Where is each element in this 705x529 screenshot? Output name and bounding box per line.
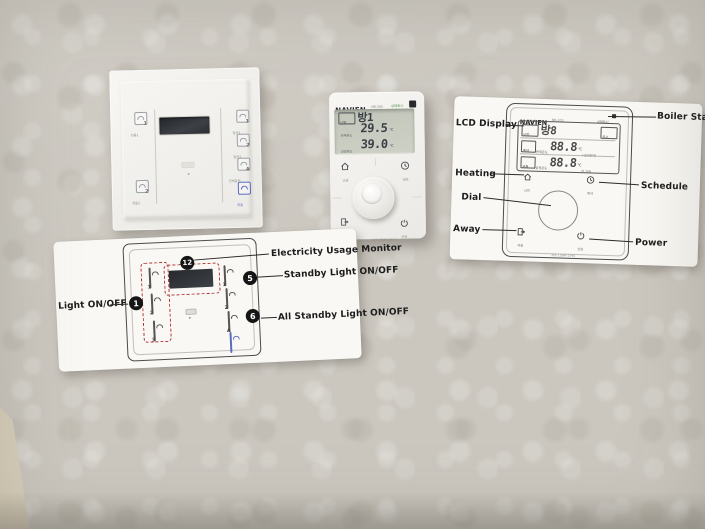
dial-knob (361, 183, 382, 204)
away-icon (237, 182, 250, 195)
smart-switch-display (159, 116, 209, 134)
mode-tag: 난방 (338, 112, 355, 124)
tick-mark (375, 158, 376, 166)
set-temp-value: 39.0 (361, 137, 388, 151)
callout-schedule: Schedule (641, 181, 688, 192)
clock-icon (400, 161, 410, 171)
standby-all-button: A 전체절전 (230, 157, 256, 177)
wall-photo: SMART SWITCH 1 전등1 2 전등2 1 절전1 2 절전2 A 전… (0, 0, 705, 529)
standby-1-icon: 1 (236, 110, 249, 123)
mode-tag: 난방 (521, 124, 538, 137)
light-1-button: 1 전등1 (127, 112, 153, 132)
light-1-icon: 1 (134, 112, 147, 125)
thermostat-dial (352, 177, 395, 220)
tick-mark (412, 196, 421, 197)
callout-line (482, 229, 516, 231)
clock-icon (585, 175, 594, 184)
heating-button: 난방 (334, 161, 356, 190)
drawing-away-button: 외출 (510, 227, 531, 256)
thermostat: NAVIEN NR-20S 상태표시 난방 방1 현재온도 29.5 ℃ (329, 91, 426, 239)
power-icon (399, 219, 408, 228)
boiler-guide-card: NAVIEN NR-20S 상태표시 난방 방8 온수 예약 현재온도 88.8… (450, 96, 703, 267)
current-temp-value: 88.8 (550, 139, 577, 154)
light-2-icon: 2 (135, 180, 148, 193)
standby-all-icon: A (237, 158, 250, 171)
power-icon (576, 231, 585, 240)
dhw-tag: 온수 (600, 127, 617, 140)
tick-mark (332, 198, 341, 199)
callout-lcd-display: LCD Display (456, 118, 504, 130)
drawing-schedule-button: 예약 (579, 175, 600, 204)
away-button: 외출 (231, 181, 257, 201)
away-tag: 외출 (520, 156, 535, 168)
thermostat-lcd: 난방 방1 현재온도 29.5 ℃ 설정온도 39.0 ℃ (334, 108, 415, 154)
standby-2-button: 2 절전2 (230, 133, 256, 153)
callout-light-onoff: Light ON/OFF (58, 300, 108, 312)
switch-guide-card: 1 2 3 SMART SWITCH 1 2 A 12 1 5 6 Electr… (53, 228, 362, 372)
drawing-ir-sensor (185, 309, 196, 315)
zone-readout: 방8 (540, 122, 556, 138)
standby-1-button: 1 절전1 (229, 109, 255, 129)
drawing-lcd: 난방 방8 온수 예약 현재온도 88.8 ℃ 시간(예약) 외출 설정온도 8… (516, 120, 621, 174)
standby-2-icon: 2 (236, 134, 249, 147)
indicator-dot (188, 173, 190, 175)
set-temp-unit: ℃ (390, 136, 399, 155)
callout-heating: Heating (455, 168, 488, 179)
callout-boiler-status: Boiler Status (657, 112, 705, 124)
light-2-button: 2 전등2 (129, 180, 155, 200)
reserve-tag: 예약 (521, 140, 536, 152)
callout-line (261, 317, 277, 319)
drawing-display (169, 269, 214, 289)
ir-sensor (181, 162, 194, 168)
status-led-window (409, 100, 416, 107)
door-away-icon (339, 217, 348, 226)
drawing-indicator-dot (189, 317, 191, 319)
callout-power: Power (635, 238, 667, 249)
door-away-icon (516, 227, 525, 236)
current-temp-value: 29.5 (360, 121, 387, 135)
house-icon (340, 161, 350, 171)
callout-line (258, 275, 283, 278)
callout-away: Away (452, 224, 480, 235)
schedule-button: 예약 (394, 160, 416, 189)
smart-switch-panel: SMART SWITCH 1 전등1 2 전등2 1 절전1 2 절전2 A 전… (109, 67, 263, 230)
callout-dial: Dial (457, 192, 481, 203)
set-temp-value: 88.8 (549, 155, 576, 170)
drawing-service-number: A/S 1588-1144 (533, 245, 594, 266)
drawing-heating-button: 난방 (516, 172, 537, 201)
